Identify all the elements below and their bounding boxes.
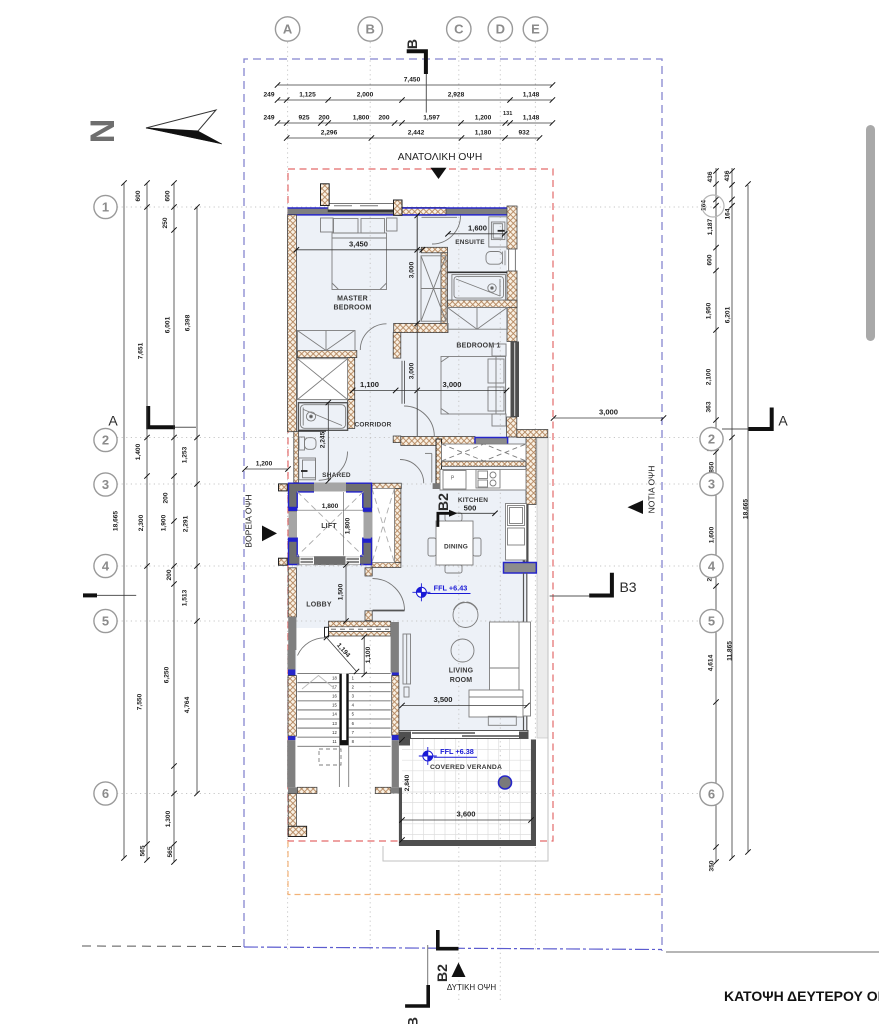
svg-text:1,400: 1,400 xyxy=(135,443,142,460)
svg-text:131: 131 xyxy=(503,111,512,117)
svg-text:6,250: 6,250 xyxy=(164,666,171,683)
svg-text:B3: B3 xyxy=(619,579,636,595)
svg-text:600: 600 xyxy=(135,190,142,201)
svg-text:3: 3 xyxy=(102,477,109,492)
svg-text:18,665: 18,665 xyxy=(743,499,750,520)
svg-text:1,600: 1,600 xyxy=(709,526,716,543)
svg-text:500: 500 xyxy=(464,503,477,512)
svg-text:2,245: 2,245 xyxy=(320,431,327,448)
svg-text:250: 250 xyxy=(162,217,169,228)
svg-text:B: B xyxy=(405,1017,421,1024)
svg-text:LOBBY: LOBBY xyxy=(306,602,332,609)
svg-text:1,148: 1,148 xyxy=(523,115,540,122)
svg-text:18: 18 xyxy=(332,675,337,680)
svg-text:1,125: 1,125 xyxy=(299,92,316,99)
svg-text:MASTER: MASTER xyxy=(337,296,368,303)
svg-text:SHARED: SHARED xyxy=(322,472,351,479)
svg-text:3: 3 xyxy=(708,477,715,492)
svg-text:600: 600 xyxy=(165,190,172,201)
svg-text:11: 11 xyxy=(332,739,337,744)
svg-text:2,840: 2,840 xyxy=(404,774,411,791)
svg-text:ΒΟΡΕΙΑ ΟΨΗ: ΒΟΡΕΙΑ ΟΨΗ xyxy=(244,494,254,547)
svg-text:N: N xyxy=(84,119,122,144)
svg-text:B: B xyxy=(366,22,375,37)
svg-text:565: 565 xyxy=(140,845,147,856)
svg-text:BEDROOM 1: BEDROOM 1 xyxy=(456,343,500,350)
svg-text:565: 565 xyxy=(167,846,174,857)
svg-text:FFL +6.38: FFL +6.38 xyxy=(440,747,474,756)
svg-text:6,398: 6,398 xyxy=(185,314,192,331)
svg-text:200: 200 xyxy=(166,569,173,580)
svg-text:7,550: 7,550 xyxy=(137,693,144,710)
svg-text:3,000: 3,000 xyxy=(409,362,416,379)
svg-text:14: 14 xyxy=(332,712,337,717)
svg-text:1,100: 1,100 xyxy=(365,646,372,663)
svg-text:3,000: 3,000 xyxy=(442,380,461,389)
svg-text:1,253: 1,253 xyxy=(182,446,189,463)
svg-text:5: 5 xyxy=(708,614,715,629)
svg-text:249: 249 xyxy=(263,115,274,122)
svg-text:1,597: 1,597 xyxy=(423,115,440,122)
svg-text:1,500: 1,500 xyxy=(338,583,345,600)
svg-text:3,450: 3,450 xyxy=(349,240,368,249)
svg-text:2,291: 2,291 xyxy=(183,515,190,532)
svg-text:3,000: 3,000 xyxy=(409,261,416,278)
svg-text:1: 1 xyxy=(102,200,109,215)
svg-text:DINING: DINING xyxy=(444,544,468,551)
svg-text:1,180: 1,180 xyxy=(475,130,492,137)
svg-text:164: 164 xyxy=(725,208,732,219)
svg-text:4: 4 xyxy=(102,559,110,574)
svg-text:200: 200 xyxy=(378,115,389,122)
svg-text:6: 6 xyxy=(708,787,715,802)
svg-text:2,100: 2,100 xyxy=(706,368,713,385)
svg-text:1,148: 1,148 xyxy=(523,92,540,99)
svg-text:2,000: 2,000 xyxy=(357,92,374,99)
svg-text:436: 436 xyxy=(707,171,714,182)
svg-text:1,100: 1,100 xyxy=(360,380,379,389)
svg-text:ΔΥΤΙΚΗ ΟΨΗ: ΔΥΤΙΚΗ ΟΨΗ xyxy=(447,983,496,992)
svg-text:18,665: 18,665 xyxy=(113,511,120,532)
svg-text:LIVING: LIVING xyxy=(449,668,474,675)
svg-text:1,200: 1,200 xyxy=(256,461,273,468)
svg-text:200: 200 xyxy=(163,492,170,503)
svg-text:B2: B2 xyxy=(434,964,450,982)
svg-text:1,950: 1,950 xyxy=(706,302,713,319)
svg-text:2,442: 2,442 xyxy=(408,130,425,137)
svg-text:249: 249 xyxy=(263,92,274,99)
svg-text:16: 16 xyxy=(332,694,337,699)
svg-text:2,296: 2,296 xyxy=(321,130,338,137)
svg-text:1,187: 1,187 xyxy=(707,218,714,235)
svg-text:4,614: 4,614 xyxy=(708,654,715,671)
svg-text:CORRIDOR: CORRIDOR xyxy=(355,422,392,429)
svg-text:C: C xyxy=(454,22,464,37)
svg-text:1,513: 1,513 xyxy=(182,589,189,606)
svg-text:1,800: 1,800 xyxy=(322,503,339,510)
svg-text:15: 15 xyxy=(332,703,337,708)
svg-text:A: A xyxy=(283,22,293,37)
svg-text:A: A xyxy=(778,413,788,429)
svg-text:436: 436 xyxy=(724,170,731,181)
svg-text:6,001: 6,001 xyxy=(165,316,172,333)
svg-text:12: 12 xyxy=(332,730,337,735)
svg-text:1,900: 1,900 xyxy=(161,514,168,531)
svg-text:3,500: 3,500 xyxy=(433,695,452,704)
svg-text:D: D xyxy=(496,22,505,37)
svg-text:1,600: 1,600 xyxy=(468,224,487,233)
svg-text:2,300: 2,300 xyxy=(138,514,145,531)
svg-text:2: 2 xyxy=(708,432,715,447)
svg-text:7,651: 7,651 xyxy=(138,342,145,359)
svg-text:B: B xyxy=(404,39,420,49)
svg-text:932: 932 xyxy=(518,130,529,137)
svg-text:2,928: 2,928 xyxy=(448,92,465,99)
svg-text:B2: B2 xyxy=(435,493,451,511)
svg-text:200: 200 xyxy=(318,115,329,122)
svg-text:ΚΑΤΟΨΗ ΔΕΥΤΕΡΟΥ ΟΡΟΦΟΥ: ΚΑΤΟΨΗ ΔΕΥΤΕΡΟΥ ΟΡΟΦΟΥ xyxy=(724,988,879,1004)
svg-text:ROOM: ROOM xyxy=(450,677,473,684)
svg-text:BEDROOM: BEDROOM xyxy=(334,305,372,312)
svg-text:7,450: 7,450 xyxy=(404,77,421,84)
svg-text:6,201: 6,201 xyxy=(725,306,732,323)
svg-text:2: 2 xyxy=(102,433,109,448)
svg-text:ΝΟΤΙΑ ΟΨΗ: ΝΟΤΙΑ ΟΨΗ xyxy=(647,466,657,514)
svg-text:3,600: 3,600 xyxy=(456,810,475,819)
svg-text:E: E xyxy=(531,22,540,37)
svg-text:ΑΝΑΤΟΛΙΚΗ ΟΨΗ: ΑΝΑΤΟΛΙΚΗ ΟΨΗ xyxy=(398,152,482,163)
svg-text:1,800: 1,800 xyxy=(345,517,352,534)
svg-text:FFL +6.43: FFL +6.43 xyxy=(434,583,468,592)
svg-text:ENSUITE: ENSUITE xyxy=(455,239,485,246)
svg-text:4,764: 4,764 xyxy=(184,696,191,713)
svg-text:COVERED VERANDA: COVERED VERANDA xyxy=(430,764,502,771)
svg-text:5: 5 xyxy=(102,614,109,629)
svg-text:1,300: 1,300 xyxy=(165,810,172,827)
svg-text:3,000: 3,000 xyxy=(599,408,618,417)
svg-text:925: 925 xyxy=(298,115,309,122)
svg-text:1,200: 1,200 xyxy=(475,115,492,122)
svg-text:600: 600 xyxy=(707,254,714,265)
svg-text:6: 6 xyxy=(102,786,109,801)
svg-text:LIFT: LIFT xyxy=(321,523,337,530)
svg-text:11,865: 11,865 xyxy=(727,641,734,661)
svg-text:13: 13 xyxy=(332,721,337,726)
svg-text:350: 350 xyxy=(709,860,716,871)
svg-text:363: 363 xyxy=(706,401,713,412)
svg-text:1,800: 1,800 xyxy=(353,115,370,122)
svg-text:A: A xyxy=(108,413,118,429)
svg-text:4: 4 xyxy=(708,559,716,574)
